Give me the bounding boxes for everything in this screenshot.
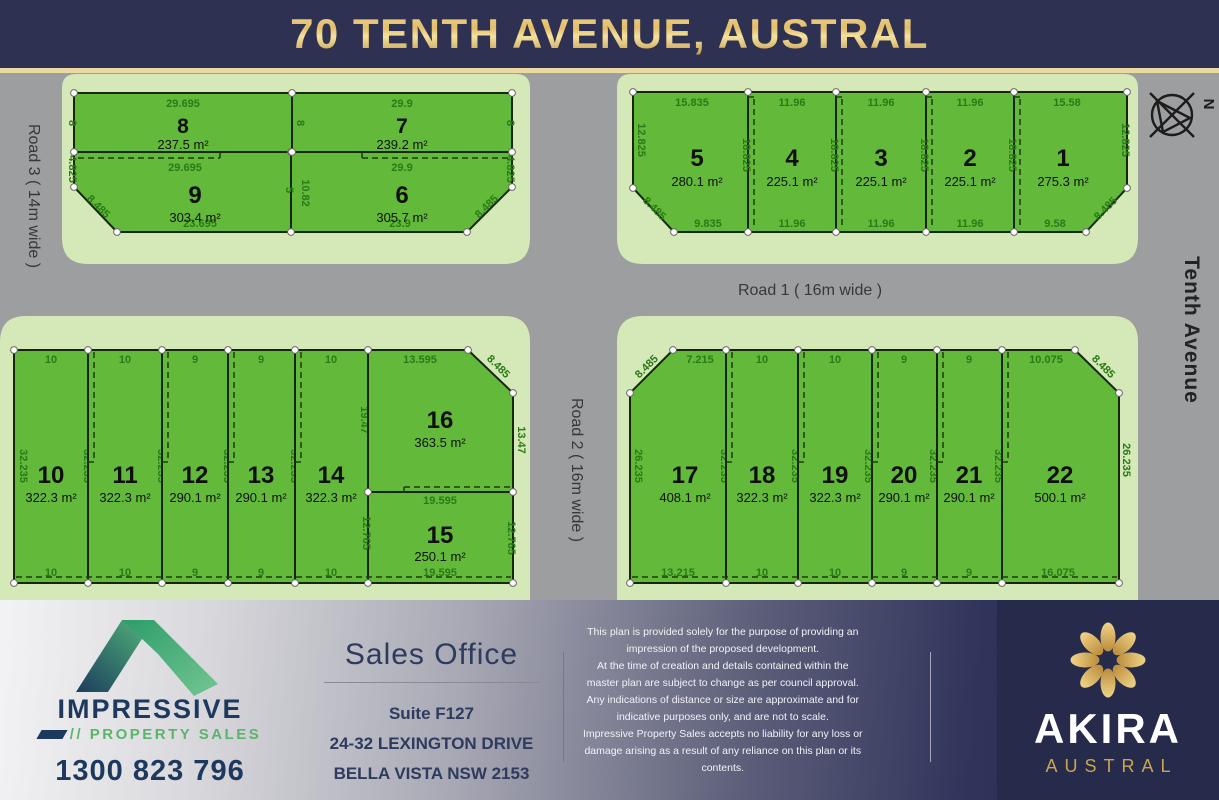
svg-text:11.96: 11.96 [957,97,984,109]
lot-20-number: 20 [891,462,918,489]
north-label: N [1200,99,1217,110]
lot-19[interactable]: 101032.23519322.3 m² [798,350,874,583]
lot-5-area: 280.1 m² [671,174,723,189]
lot-17[interactable]: 7.2158.48526.23532.23513.21517408.1 m² [630,350,730,583]
disclaimer-panel: This plan is provided solely for the pur… [575,600,920,800]
lot-17-number: 17 [672,462,699,489]
sales-office-heading: Sales Office [345,638,518,672]
lot-16[interactable]: 13.5958.48513.4716363.5 m² [368,350,527,492]
lot-15-number: 15 [427,522,454,549]
lot-8-number: 8 [177,115,189,138]
svg-text:12.765: 12.765 [360,516,372,550]
lot-2-area: 225.1 m² [944,174,996,189]
survey-peg [289,149,296,156]
svg-text:8: 8 [66,120,78,126]
survey-peg [510,580,517,587]
lot-14[interactable]: 101019.4714322.3 m² [295,350,370,583]
tenth-avenue-label: Tenth Avenue [1180,256,1203,404]
survey-peg [85,580,92,587]
page-title: 70 TENTH AVENUE, AUSTRAL [290,10,929,58]
survey-peg [869,580,876,587]
svg-text:11.96: 11.96 [957,218,984,230]
survey-peg [365,580,372,587]
lot-2-number: 2 [963,145,976,172]
lot-10-number: 10 [38,462,65,489]
svg-text:7.215: 7.215 [686,354,714,366]
survey-peg [627,390,634,397]
svg-text:8: 8 [294,120,306,126]
survey-peg [509,184,516,191]
survey-peg [85,347,92,354]
lot-13[interactable]: 9932.23513290.1 m² [228,350,300,583]
lot-7-area: 239.2 m² [376,137,428,152]
survey-peg [630,185,637,192]
svg-text:32.235: 32.235 [17,449,29,483]
road1-label: Road 1 ( 16m wide ) [738,282,882,299]
svg-text:29.9: 29.9 [391,162,412,174]
svg-text:29.9: 29.9 [391,98,412,110]
sales-office-street: 24-32 LEXINGTON DRIVE [330,729,534,759]
survey-peg [833,229,840,236]
lot-18-area: 322.3 m² [736,490,788,505]
svg-text:18.825: 18.825 [918,138,930,172]
lot-7[interactable]: 29.9887239.2 m² [292,93,516,152]
lot-8-area: 237.5 m² [157,137,209,152]
survey-peg [365,347,372,354]
lot-1-area: 275.3 m² [1037,174,1089,189]
svg-text:10: 10 [829,354,841,366]
lot-18[interactable]: 101032.23518322.3 m² [726,350,801,583]
lot-21-area: 290.1 m² [943,490,995,505]
survey-peg [71,90,78,97]
survey-peg [934,347,941,354]
survey-peg [465,347,472,354]
survey-peg [923,229,930,236]
svg-text:12.825: 12.825 [1119,123,1131,157]
survey-peg [509,90,516,97]
survey-peg [510,489,517,496]
lot-3[interactable]: 11.9611.9618.8253225.1 m² [836,92,930,232]
svg-text:9: 9 [258,354,264,366]
svg-text:10.075: 10.075 [1029,354,1063,366]
survey-peg [1011,89,1018,96]
svg-text:9: 9 [966,354,972,366]
lot-10-area: 322.3 m² [25,490,77,505]
lot-12-number: 12 [182,462,209,489]
lot-14-area: 322.3 m² [305,490,357,505]
lot-19-area: 322.3 m² [809,490,861,505]
lot-18-number: 18 [749,462,776,489]
svg-text:4.825: 4.825 [504,155,516,183]
agency-phone[interactable]: 1300 823 796 [55,755,244,788]
lot-11-area: 322.3 m² [99,490,151,505]
survey-peg [292,347,299,354]
svg-text:9: 9 [901,354,907,366]
brand-subname: AUSTRAL [1038,756,1177,777]
sales-office-suburb: BELLA VISTA NSW 2153 [334,759,530,789]
survey-peg [723,347,730,354]
road3-label: Road 3 ( 14m wide ) [25,124,42,268]
lot-10[interactable]: 101032.23532.23510322.3 m² [14,350,93,583]
agency-panel: IMPRESSIVE // PROPERTY SALES 1300 823 79… [0,600,300,800]
akira-flower-icon [1066,618,1150,702]
impressive-logo-icon [66,614,234,696]
survey-peg [1072,347,1079,354]
svg-text:10: 10 [45,354,57,366]
svg-text:15.835: 15.835 [675,97,709,109]
svg-text:11.96: 11.96 [868,218,895,230]
survey-peg [159,347,166,354]
survey-peg [745,89,752,96]
svg-text:10: 10 [325,354,337,366]
survey-peg [11,347,18,354]
lot-17-area: 408.1 m² [659,490,711,505]
lot-15[interactable]: 19.59512.76512.76519.59515250.1 m² [360,492,517,583]
agency-name: IMPRESSIVE [57,696,242,723]
svg-text:9.835: 9.835 [694,218,722,230]
svg-text:10: 10 [756,354,768,366]
survey-peg [795,580,802,587]
survey-peg [288,229,295,236]
survey-peg [292,580,299,587]
survey-peg [1116,390,1123,397]
svg-text:10: 10 [119,354,131,366]
survey-peg [1083,229,1090,236]
lot-22-area: 500.1 m² [1034,490,1086,505]
svg-text:8: 8 [504,120,516,126]
svg-text:9: 9 [192,354,198,366]
survey-peg [934,580,941,587]
svg-text:29.695: 29.695 [166,98,200,110]
survey-peg [289,90,296,97]
survey-peg [1116,580,1123,587]
lot-12-area: 290.1 m² [169,490,221,505]
title-bar: 70 TENTH AVENUE, AUSTRAL [0,0,1219,68]
svg-text:19.595: 19.595 [423,495,457,507]
lot-19-number: 19 [822,462,849,489]
lot-13-number: 13 [248,462,275,489]
survey-peg [225,347,232,354]
survey-peg [723,580,730,587]
survey-peg [1124,89,1131,96]
lot-21-number: 21 [956,462,983,489]
survey-peg [745,229,752,236]
footer: IMPRESSIVE // PROPERTY SALES 1300 823 79… [0,600,1219,800]
lot-5[interactable]: 15.83512.8258.4859.83518.8255280.1 m² [633,92,752,232]
svg-text:18.825: 18.825 [828,138,840,172]
lot-15-area: 250.1 m² [414,549,466,564]
survey-peg [1011,229,1018,236]
lot-9-area: 303.4 m² [169,210,221,225]
survey-peg [71,184,78,191]
lot-7-number: 7 [396,115,408,138]
svg-text:11.96: 11.96 [868,97,895,109]
svg-text:18.825: 18.825 [740,138,752,172]
survey-peg [1124,185,1131,192]
survey-peg [833,89,840,96]
agency-tag-icon [36,730,67,739]
lot-5-number: 5 [690,145,703,172]
survey-peg [670,347,677,354]
sales-office-suite: Suite F127 [389,699,474,729]
survey-peg [627,580,634,587]
survey-peg [71,149,78,156]
survey-peg [510,390,517,397]
disclaimer-text: This plan is provided solely for the pur… [583,624,863,777]
footer-divider-left [563,652,564,762]
lot-20[interactable]: 9932.23520290.1 m² [872,350,939,583]
lot-22-number: 22 [1047,462,1074,489]
lot-4-area: 225.1 m² [766,174,818,189]
svg-text:12.765: 12.765 [505,521,517,555]
lot-11[interactable]: 101032.23511322.3 m² [88,350,167,583]
brand-panel: AKIRA AUSTRAL [997,600,1219,800]
survey-peg [464,229,471,236]
sales-office-rule [324,682,539,683]
survey-peg [159,580,166,587]
svg-text:15.58: 15.58 [1053,97,1081,109]
lot-11-number: 11 [112,462,137,489]
lot-6-area: 305.7 m² [376,210,428,225]
sales-office-panel: Sales Office Suite F127 24-32 LEXINGTON … [300,600,563,800]
survey-peg [795,347,802,354]
lot-3-area: 225.1 m² [855,174,907,189]
lot-16-number: 16 [427,407,454,434]
svg-text:11.96: 11.96 [779,218,806,230]
footer-divider-right [930,652,931,762]
site-plan: Road 3 ( 14m wide ) Road 1 ( 16m wide ) … [0,73,1219,600]
site-plan-svg: Road 3 ( 14m wide ) Road 1 ( 16m wide ) … [0,73,1219,600]
lot-3-number: 3 [874,145,887,172]
svg-text:29.695: 29.695 [168,162,202,174]
lot-4[interactable]: 11.9611.9618.8254225.1 m² [748,92,840,232]
lot-9-number: 9 [188,182,201,209]
agency-tagline: // PROPERTY SALES [70,726,261,743]
lot-21[interactable]: 9932.23521290.1 m² [937,350,1004,583]
svg-text:13.595: 13.595 [403,354,437,366]
survey-peg [869,347,876,354]
svg-text:4.825: 4.825 [66,155,78,183]
survey-peg [11,580,18,587]
survey-peg [630,89,637,96]
survey-peg [225,580,232,587]
svg-text:26.235: 26.235 [632,449,644,483]
lot-12[interactable]: 9932.23512290.1 m² [162,350,233,583]
road2-label: Road 2 ( 16m wide ) [568,398,585,542]
lot-8[interactable]: 29.69588237.5 m² [66,93,292,152]
lot-2[interactable]: 11.9611.9618.8252225.1 m² [926,92,1018,232]
brand-name: AKIRA [1034,708,1182,750]
svg-text:9.58: 9.58 [1044,218,1065,230]
lot-6-number: 6 [395,182,408,209]
svg-text:18.825: 18.825 [1006,138,1018,172]
lot-14-number: 14 [318,462,345,489]
survey-peg [114,229,121,236]
svg-text:13.47: 13.47 [515,426,527,454]
lot-4-number: 4 [785,145,799,172]
survey-peg [999,347,1006,354]
lot-16-area: 363.5 m² [414,435,466,450]
svg-text:12.825: 12.825 [635,123,647,157]
survey-peg [999,580,1006,587]
svg-text:10.82: 10.82 [299,179,311,207]
svg-text:11.96: 11.96 [779,97,806,109]
lot-1-number: 1 [1056,145,1069,172]
lot-20-area: 290.1 m² [878,490,930,505]
svg-text:26.235: 26.235 [1120,443,1132,477]
survey-peg [671,229,678,236]
svg-text:5: 5 [283,187,295,193]
survey-peg [923,89,930,96]
lot-13-area: 290.1 m² [235,490,287,505]
survey-peg [365,489,372,496]
survey-peg [509,149,516,156]
